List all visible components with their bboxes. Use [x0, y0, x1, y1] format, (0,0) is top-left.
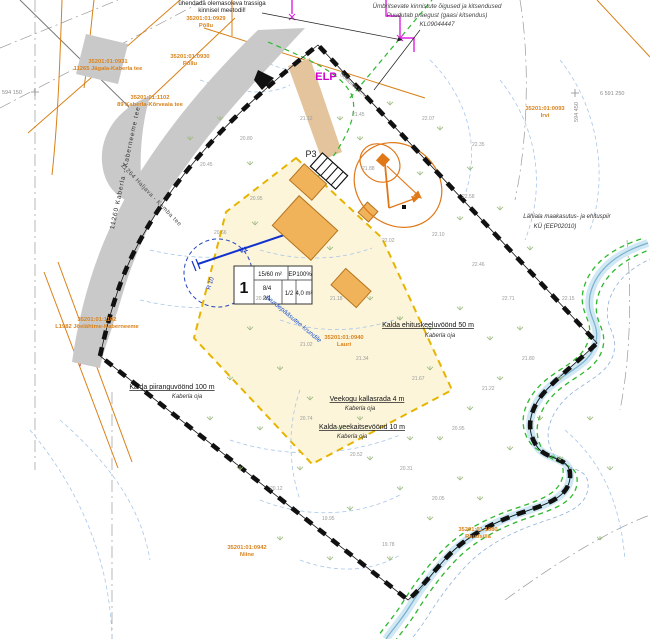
plot-v3: 1/2 — [285, 291, 294, 297]
plot-v1: 8/4 — [263, 286, 272, 292]
elp-label: ELP — [315, 71, 336, 83]
zone-sub: Kaberla oja — [345, 406, 376, 412]
elevation-value: 20.52 — [350, 452, 363, 458]
stream-contour — [404, 253, 650, 639]
elevation-value: 22.71 — [502, 296, 515, 302]
elevation-value: 19.95 — [322, 516, 335, 522]
top-note-line2: kinnisel meetodil! — [198, 7, 246, 14]
zone-title: Kalda veekaitsevöönd 10 m — [319, 424, 405, 431]
elevation-value: 21.02 — [300, 342, 313, 348]
zone-sub: Kaberla oja — [425, 333, 456, 339]
elevation-value: 22.58 — [462, 194, 475, 200]
elevation-value: 21.45 — [352, 112, 365, 118]
coord-y-left: 594 150 — [2, 90, 22, 96]
cadastral-label: Põllu — [183, 61, 198, 67]
cadastral-label: Põllu — [199, 23, 214, 29]
plot-v4: 4,0 m² — [295, 291, 312, 297]
utility-green-lines — [268, 0, 432, 182]
cadastral-label: 35201:01:0093 — [525, 106, 565, 112]
cadastral-label: 35201:01:1080 — [458, 527, 497, 533]
elevation-value: 22.02 — [382, 238, 395, 244]
elevation-value: 22.46 — [472, 262, 485, 268]
cadastral-label: 35201:01:1102 — [77, 317, 116, 323]
lahiala-line2: KÜ (EEP02010) — [534, 223, 577, 230]
zone-title: Veekogu kallasrada 4 m — [330, 396, 405, 403]
elevation-value: 22.10 — [432, 232, 445, 238]
cadastral-label: Irvi — [541, 113, 550, 119]
well-symbol — [376, 153, 390, 167]
cadastral-label: 35201:01:0931 — [88, 59, 128, 65]
cadastral-label: 35201:01:0929 — [186, 16, 226, 22]
cadastral-label: 11265 Jägala-Kaberla tee — [74, 66, 143, 72]
right-note-line1: Ümbritsevate kinnistute õigused ja kitse… — [373, 3, 503, 10]
zone-sub: Kaberla oja — [172, 394, 203, 400]
cadastral-label: 35201:01:0940 — [324, 335, 363, 341]
p3-label: P3 — [305, 149, 316, 159]
cadastral-label: 35201:01:1102 — [130, 95, 169, 101]
zone-title: Kalda ehituskeeluvöönd 50 m — [382, 322, 474, 329]
cadastral-label: 89 Kaberla-Kõrveaia tee — [117, 102, 184, 108]
elevation-value: 22.07 — [422, 116, 435, 122]
zone-sub: Kaberla oja — [337, 434, 368, 440]
hoonestusala — [194, 158, 452, 464]
elevation-value: 20.95 — [250, 196, 263, 202]
elevation-value: 22.35 — [472, 142, 485, 148]
elevation-value: 22.15 — [562, 296, 575, 302]
elevation-value: 20.05 — [432, 496, 445, 502]
elevation-value: 20.74 — [300, 416, 313, 422]
elevation-value: 20.31 — [400, 466, 413, 472]
plot-number: 1 — [240, 280, 249, 297]
top-note-line1: ühendada olemasoleva trassiga — [178, 0, 266, 7]
plot-ep: EP100% — [288, 272, 312, 278]
lahiala-line1: Lähiala maakasutus- ja ehituspiir — [523, 214, 611, 220]
elevation-value: 20.95 — [452, 426, 465, 432]
plan-canvas: 1 15/60 m² EP100% 8/4 2/1 1/2 4,0 m² 21.… — [0, 0, 650, 639]
detail-plan-map: 1 15/60 m² EP100% 8/4 2/1 1/2 4,0 m² 21.… — [0, 0, 650, 639]
coord-x-right: 6 591 250 — [600, 91, 624, 97]
zone-title: Kalda piiranguvöönd 100 m — [129, 384, 214, 391]
survey-point — [402, 205, 406, 209]
cadastral-label: 35201:01:0942 — [227, 545, 266, 551]
right-note-line3: KL09044447 — [419, 21, 455, 28]
right-note-line2: Puudutab praegust (gaasi kitsendus) — [387, 12, 488, 19]
cadastral-label: Raudsilla — [465, 534, 492, 540]
elevation-value: 21.67 — [412, 376, 425, 382]
elevation-value: 21.18 — [330, 296, 343, 302]
cadastral-label: Niine — [240, 552, 255, 558]
elevation-value: 20.45 — [200, 162, 213, 168]
elevation-value: 21.88 — [362, 166, 375, 172]
elevation-value: 21.80 — [522, 356, 535, 362]
cadastral-label: Lauri — [337, 342, 352, 348]
elevation-value: 21.12 — [300, 116, 313, 122]
cadastral-label: L1982 Jõelähtme-Kaberneeme — [55, 324, 139, 330]
elevation-value: 21.34 — [356, 356, 369, 362]
elevation-value: 20.80 — [240, 136, 253, 142]
elevation-value: 20.66 — [214, 230, 227, 236]
connection-ticks — [192, 259, 200, 271]
plot-area: 15/60 m² — [258, 272, 282, 278]
cadastral-label: 35201:01:0930 — [170, 54, 209, 60]
elevation-value: 19.78 — [382, 542, 395, 548]
coord-y-right: 594 450 — [574, 102, 580, 122]
elevation-value: 21.22 — [482, 386, 495, 392]
elevation-value: 20.12 — [270, 486, 283, 492]
